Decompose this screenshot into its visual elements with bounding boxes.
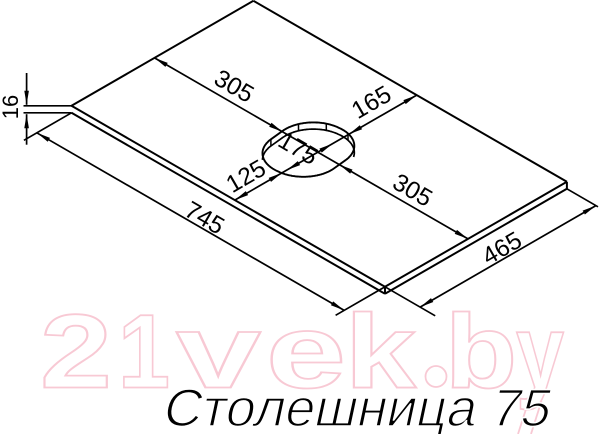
svg-text:1: 1 <box>118 294 170 411</box>
svg-text:16: 16 <box>0 95 23 119</box>
svg-text:2: 2 <box>40 294 112 411</box>
svg-text:Столешница 75: Столешница 75 <box>158 379 558 434</box>
